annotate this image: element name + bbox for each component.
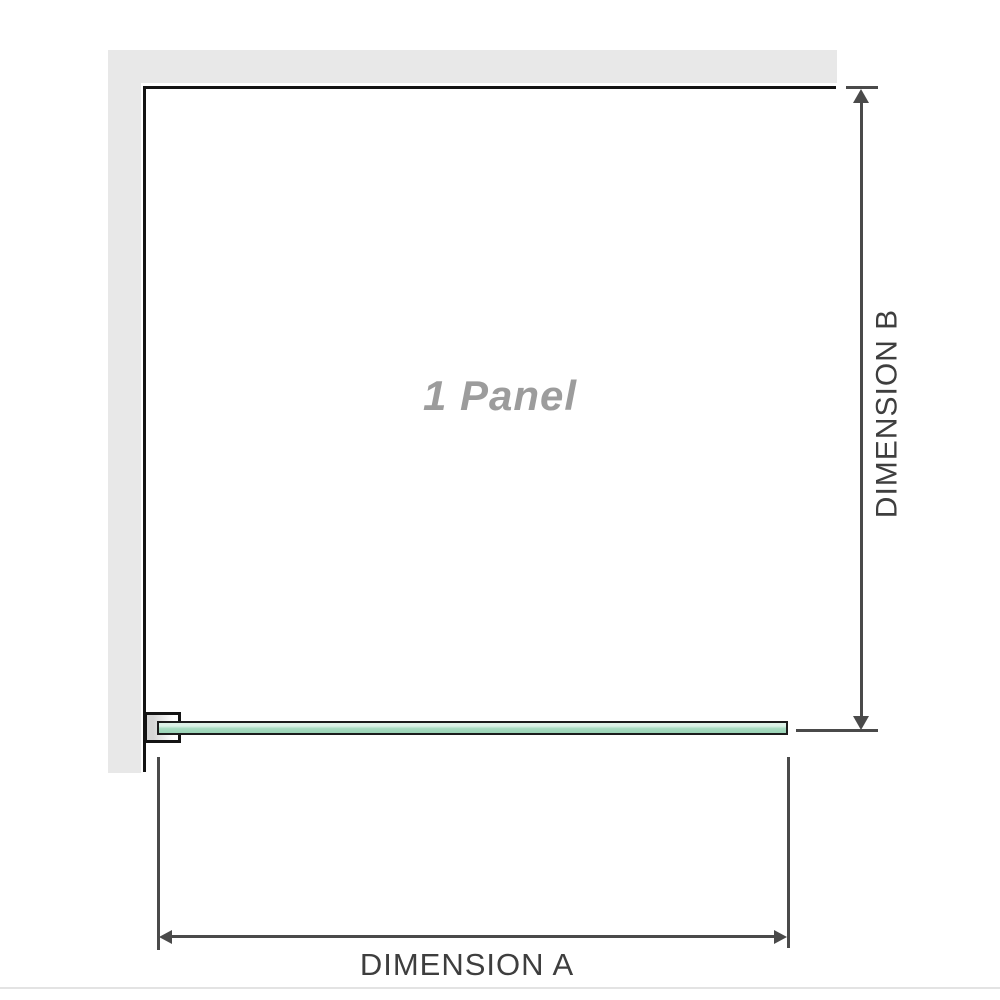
dimension-a-extension-right <box>787 757 790 948</box>
dimension-b-line <box>860 95 863 725</box>
dimension-a-arrowhead-left-icon <box>159 930 172 944</box>
panel-outline-left <box>143 86 146 772</box>
dimension-a-extension-left <box>157 757 160 950</box>
panel-outline-top <box>143 86 836 89</box>
panel-count-label: 1 Panel <box>350 372 650 420</box>
dimension-b-label: DIMENSION B <box>872 264 903 564</box>
diagram-canvas: 1 Panel DIMENSION B DIMENSION A <box>0 0 1000 1000</box>
glass-panel <box>157 721 788 735</box>
dimension-b-arrowhead-up-icon <box>853 89 869 103</box>
dimension-a-label: DIMENSION A <box>317 947 617 983</box>
dimension-b-arrowhead-down-icon <box>853 716 869 730</box>
footer-rule <box>0 987 1000 989</box>
dimension-a-line <box>166 935 782 938</box>
wall-top-band <box>108 50 837 83</box>
dimension-a-arrowhead-right-icon <box>774 930 787 944</box>
wall-left-band <box>108 50 141 773</box>
